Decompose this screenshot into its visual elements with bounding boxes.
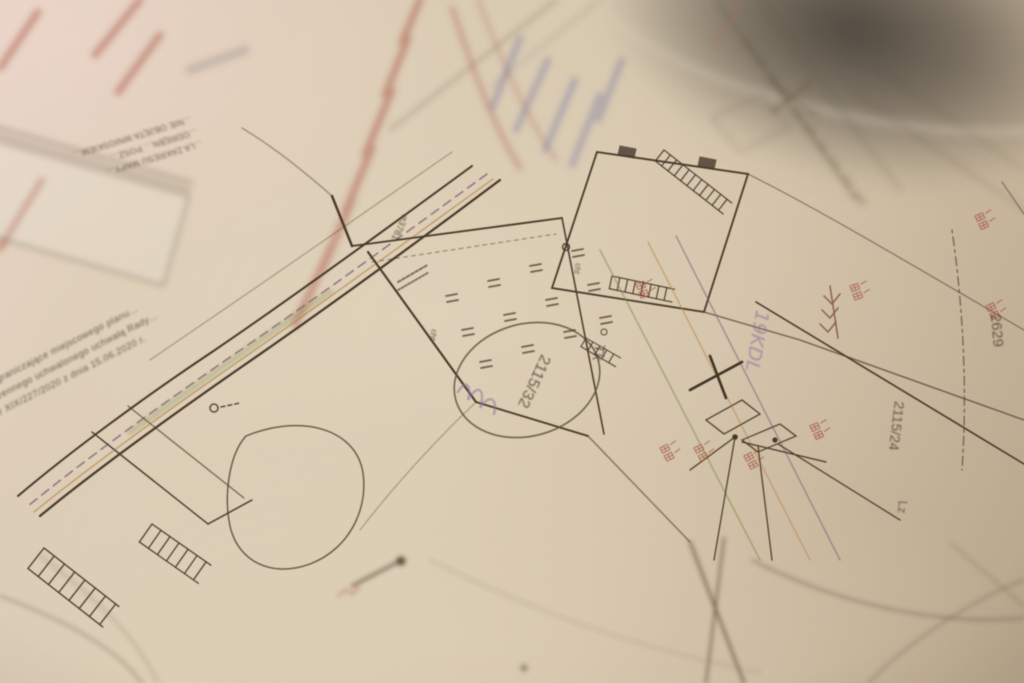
blue-ink-marks (190, 38, 622, 165)
right-parcel-lines (588, 174, 1024, 542)
landuse-label-tk: Tk (589, 343, 609, 362)
intersection-node-cluster (690, 400, 900, 560)
landuse-label-lz: Lz (895, 500, 910, 514)
survey-cross (690, 356, 742, 398)
survey-points (210, 244, 607, 413)
landuse-label-cht-1: cht (428, 329, 440, 342)
power-pole-symbol (820, 286, 840, 338)
blurred-roads-top-right (390, 0, 1024, 210)
hatch-ladder-1 (655, 150, 731, 214)
parcel-label-2629: 2629 (987, 313, 1007, 348)
parcel-2629-chain-line (952, 230, 964, 470)
landuse-label-cht-2: cht (572, 262, 583, 274)
stairs-1 (28, 548, 119, 627)
illegible-micro-annotation (395, 265, 431, 290)
photographed-survey-map: 2115/32 2115/24 2629 ⌀3781 Tk Lz cht cht… (0, 0, 1024, 683)
stairs-and-terrace (28, 406, 364, 627)
blurred-bottom-region (0, 538, 1024, 683)
red-annotation-marks (636, 209, 1008, 469)
lamp-symbol (338, 557, 405, 596)
purple-handwriting-mark (458, 385, 495, 414)
rounded-area-outline (227, 426, 363, 569)
stairs-2 (139, 524, 211, 583)
